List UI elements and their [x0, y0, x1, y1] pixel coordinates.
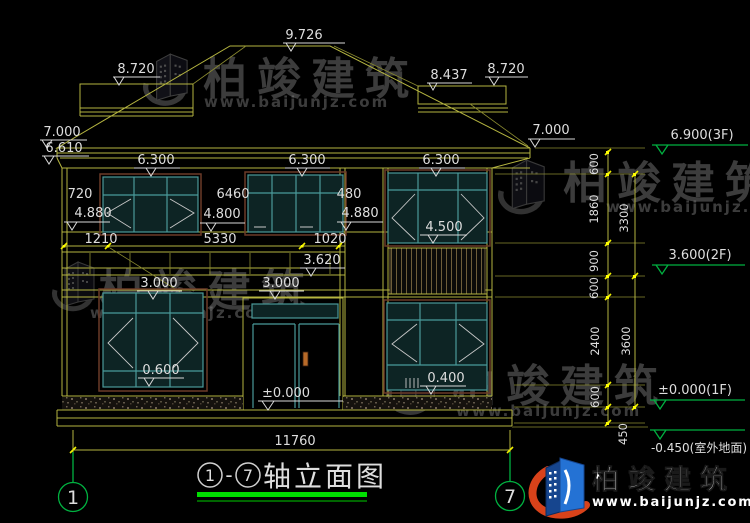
dim-label: 8.437 [430, 68, 467, 83]
dim-label: 8.720 [487, 62, 524, 77]
title-text: 轴立面图 [263, 460, 387, 493]
title-dash: - [225, 463, 232, 487]
logo-brand-text: 柏竣建筑 [592, 464, 736, 496]
chain-900: 900 [587, 250, 601, 272]
watermark-top: 柏竣建筑 www.baijunjz.com [146, 54, 419, 111]
level-2f: 3.600(2F) [652, 248, 745, 274]
balcony-slat-panel [388, 248, 487, 294]
dim-label: 7.000 [43, 125, 80, 140]
cad-elevation-drawing: 柏竣建筑 www.baijunjz.com 柏竣建筑 www.baijunjz.… [0, 0, 750, 523]
dim-label: 3.000 [262, 276, 299, 291]
dim-480: 480 [337, 187, 362, 202]
chain-2400: 2400 [588, 326, 602, 355]
chain-1860: 1860 [587, 194, 601, 223]
dim-label: ±0.000 [262, 386, 310, 401]
dim-label: 6.610 [45, 141, 82, 156]
svg-text:6.900(3F): 6.900(3F) [670, 128, 733, 143]
drawing-title: 1 - 7 轴立面图 [197, 460, 387, 502]
dim-5330: 5330 [203, 232, 236, 247]
watermark-logo-icon [55, 262, 94, 309]
door-transom [252, 304, 338, 318]
dim-label: 7.000 [532, 123, 569, 138]
dim-label: 4.880 [74, 206, 111, 221]
dim-label: 6.300 [137, 153, 174, 168]
svg-text:±0.000(1F): ±0.000(1F) [658, 383, 732, 398]
right-wing-roof [418, 86, 506, 104]
chain-450: 450 [616, 423, 630, 445]
dim-label: 3.620 [303, 253, 340, 268]
door-handle [303, 352, 308, 366]
dim-label: 4.500 [425, 220, 462, 235]
chain-600-b: 600 [587, 277, 601, 299]
dim-label: 8.720 [117, 62, 154, 77]
level-left-wing: 8.720 [113, 62, 160, 85]
dim-1210: 1210 [84, 232, 117, 247]
title-underline [197, 492, 367, 497]
dim-720: 720 [68, 187, 93, 202]
dim-label: 4.880 [341, 206, 378, 221]
level-sill-2f-right: 4.880 [337, 206, 383, 230]
dim-6460: 6460 [216, 187, 249, 202]
dim-label: 0.600 [142, 363, 179, 378]
level-right-eave: 7.000 [528, 123, 575, 147]
logo-url-text: www.baijunjz.com [592, 495, 750, 510]
title-axis-end: 7 [243, 466, 253, 485]
window-2f-center [245, 172, 346, 235]
level-left-soffit: 6.610 [42, 141, 89, 164]
level-right-inner: 8.437 [427, 68, 472, 90]
svg-text:-0.450(室外地面): -0.450(室外地面) [651, 440, 747, 455]
watermark-url: www.baijunjz.com [204, 93, 389, 111]
level-outdoor-ground: -0.450(室外地面) [650, 430, 747, 455]
dim-label: 6.300 [288, 153, 325, 168]
window-2f-left [100, 174, 201, 235]
level-entry-0000: ±0.000 [258, 386, 343, 410]
dim-label: 6.300 [422, 153, 459, 168]
level-ridge: 9.726 [283, 28, 345, 51]
level-3f: 6.900(3F) [652, 128, 748, 154]
level-right-wing: 8.720 [485, 62, 528, 85]
dim-label: 4.800 [203, 207, 240, 222]
brand-logo: 柏竣建筑 www.baijunjz.com [533, 458, 750, 516]
svg-text:3.600(2F): 3.600(2F) [668, 248, 731, 263]
chain-3300: 3300 [617, 203, 631, 232]
axis-number-start: 1 [67, 487, 79, 509]
dim-label: 0.400 [427, 371, 464, 386]
level-eave-1: 6.300 [134, 153, 180, 176]
level-sill-2f-center: 4.800 [200, 207, 245, 231]
chain-3600: 3600 [619, 326, 633, 355]
plinth [57, 410, 512, 426]
chain-600-c: 600 [588, 386, 602, 408]
dim-label: 3.000 [140, 276, 177, 291]
title-underline-2 [197, 500, 367, 502]
ground-hatch-right [343, 397, 492, 410]
logo-building-left [546, 461, 560, 516]
chain-600-a: 600 [587, 153, 601, 175]
ground-hatch-left [62, 397, 243, 410]
dim-label: 9.726 [285, 28, 322, 43]
dim-1020: 1020 [313, 232, 346, 247]
drawing-canvas: 柏竣建筑 www.baijunjz.com 柏竣建筑 www.baijunjz.… [0, 0, 750, 523]
title-axis-start: 1 [205, 466, 215, 485]
dim-11760: 11760 [274, 434, 315, 449]
logo-building-right [560, 458, 584, 512]
axis-number-end: 7 [504, 486, 516, 508]
